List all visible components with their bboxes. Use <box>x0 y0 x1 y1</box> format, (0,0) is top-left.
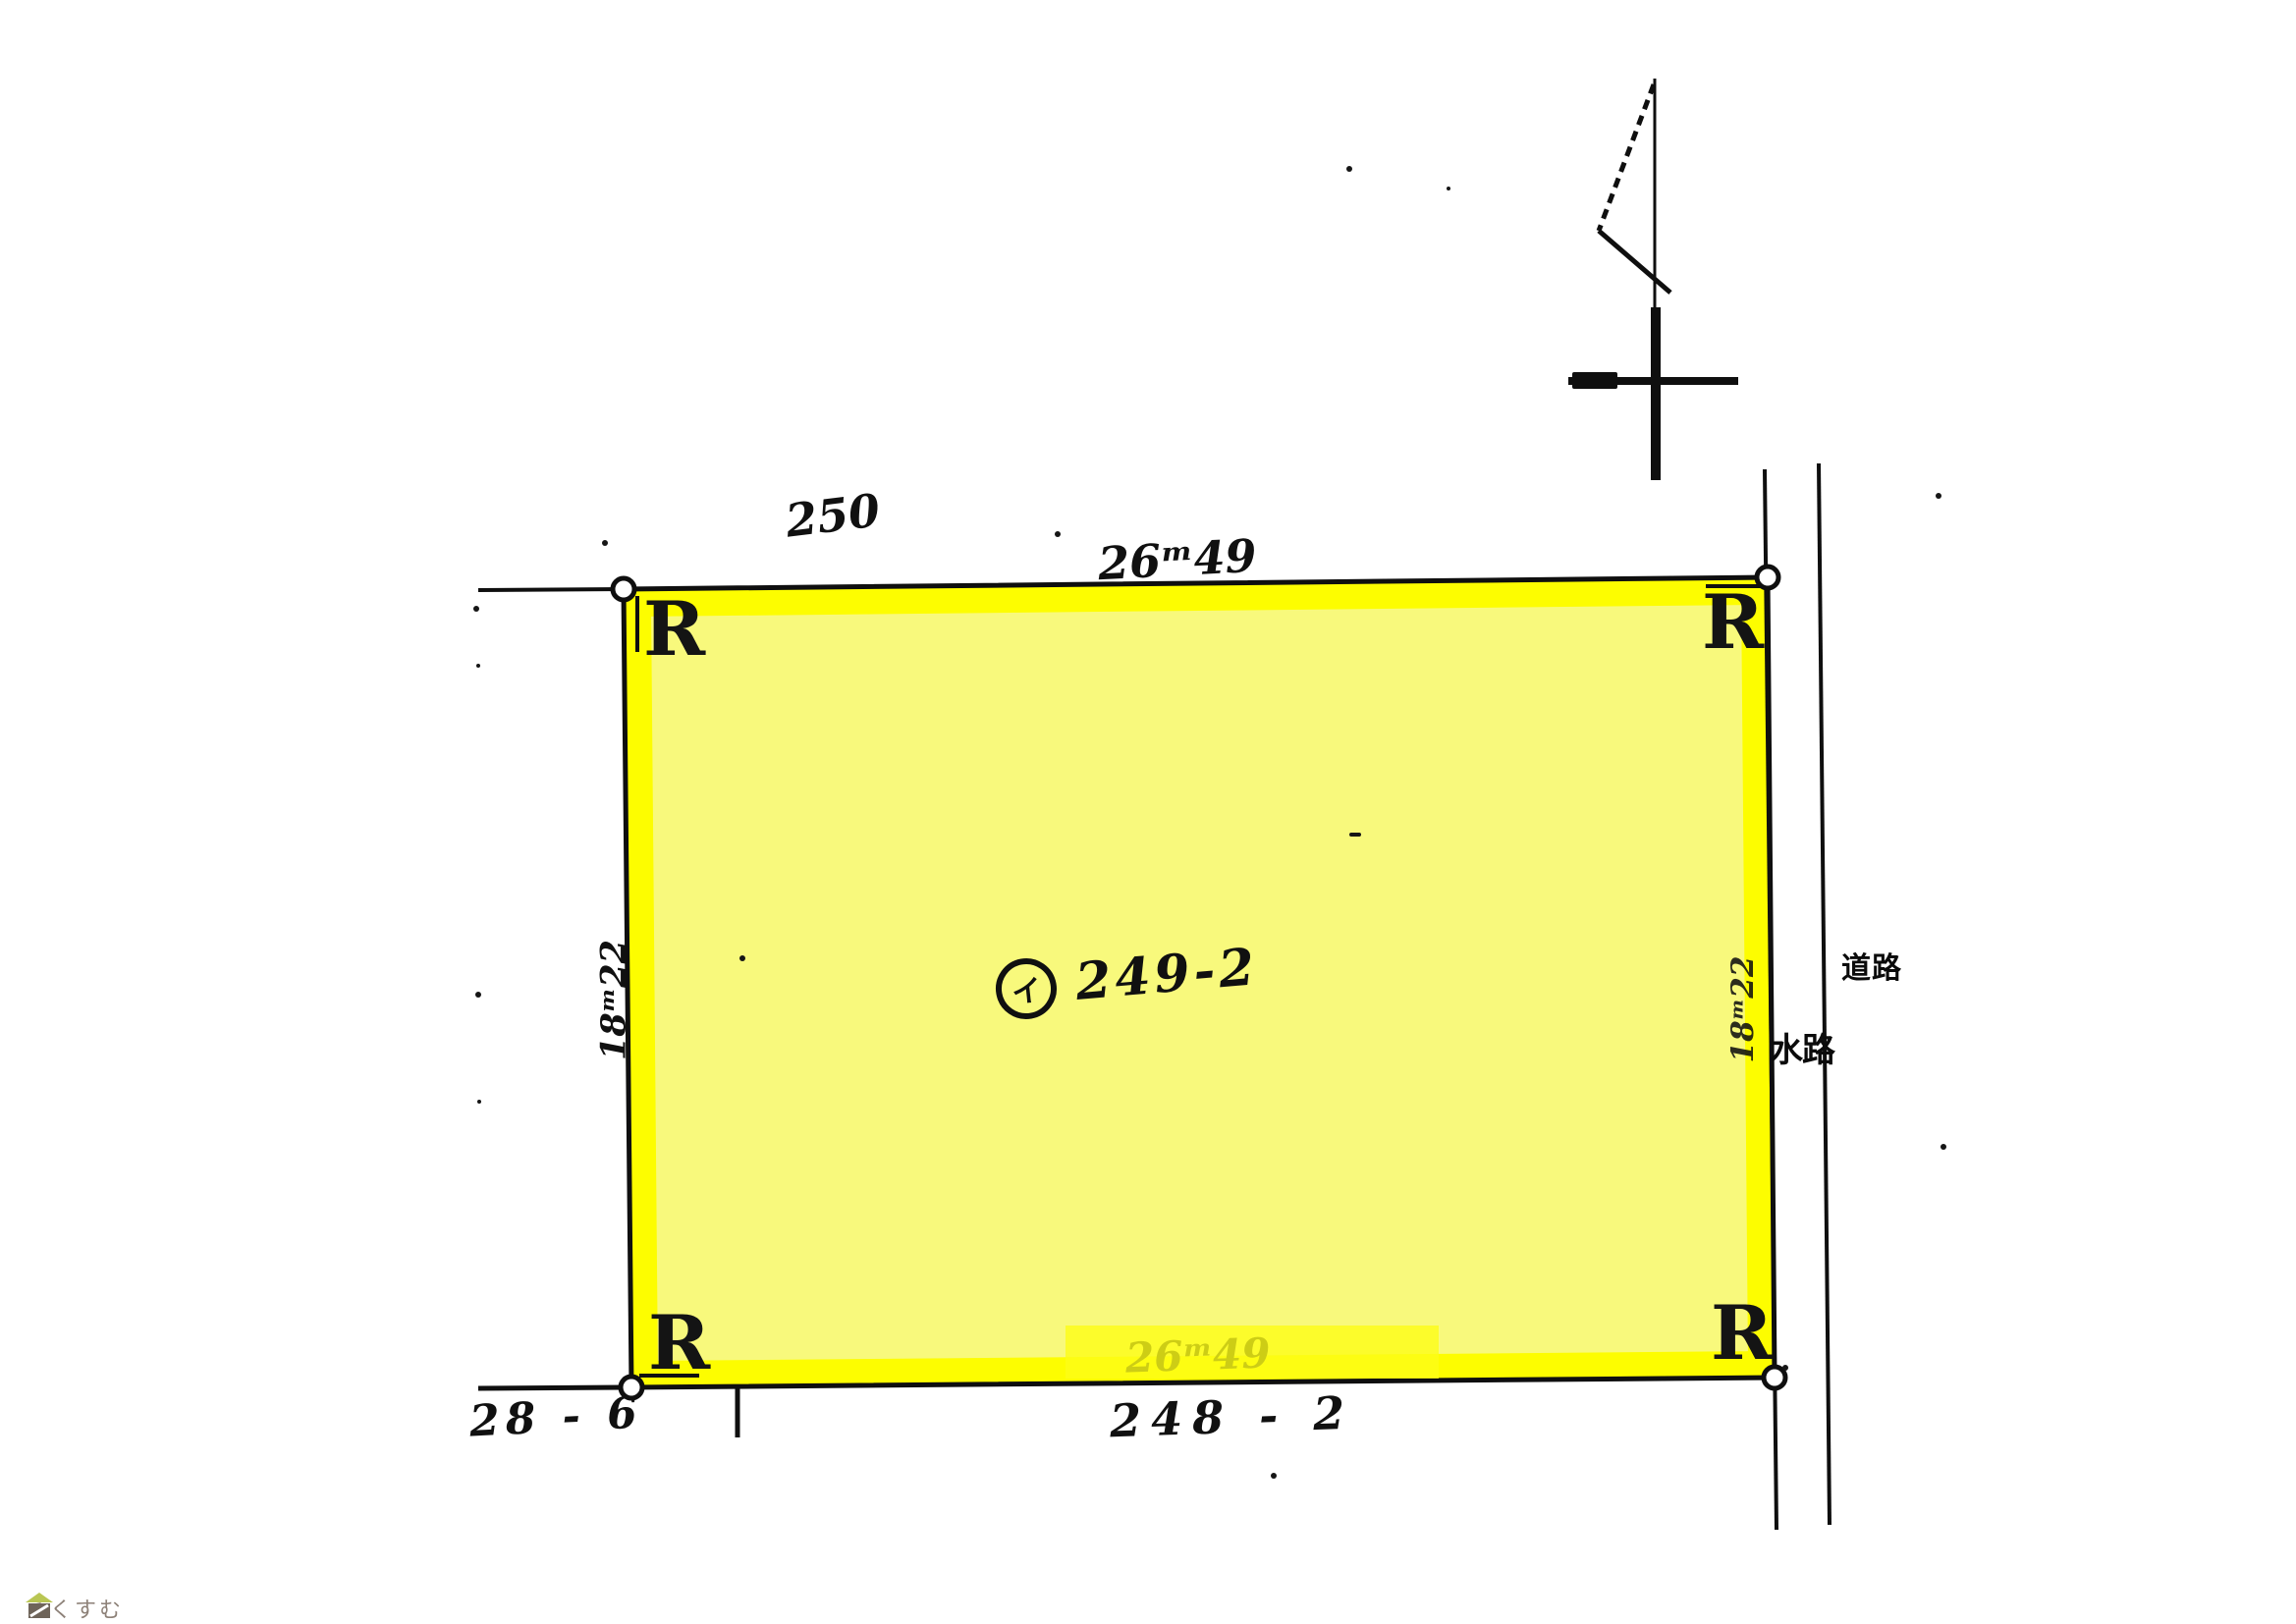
adjacent-lot-bottom: 248 - 2 <box>1109 1386 1355 1448</box>
brand-watermark: らくすむ <box>26 1593 124 1624</box>
right-edge-dimension-text: 18ᵐ22 <box>1725 956 1761 1063</box>
corner-label-top-left: R <box>643 592 705 667</box>
house-icon <box>26 1593 53 1618</box>
left-edge-dimension-text: 18ᵐ22 <box>594 940 634 1060</box>
left-edge-dimension: 18ᵐ22 <box>594 917 634 1084</box>
adjacent-lot-bottom-left: 28 - 6 <box>468 1387 644 1446</box>
corner-label-bottom-left: R <box>648 1306 710 1380</box>
corner-label-top-right: R <box>1702 585 1764 660</box>
waterway-label: 水路 <box>1770 1023 1834 1071</box>
road-label: 道路 <box>1841 944 1902 987</box>
corner-label-bottom-right: R <box>1711 1296 1773 1371</box>
north-arrow <box>1568 79 1738 480</box>
right-edge-dimension: 18ᵐ22 <box>1725 936 1761 1083</box>
top-edge-dimension: 26ᵐ49 <box>1097 529 1258 590</box>
highlighter-stroke-overlay <box>1066 1326 1439 1379</box>
owner-mark: イ <box>1010 966 1043 1012</box>
scanned-cadastral-map: { "parcel": { "corner_mark": "R", "owner… <box>0 0 2296 1623</box>
